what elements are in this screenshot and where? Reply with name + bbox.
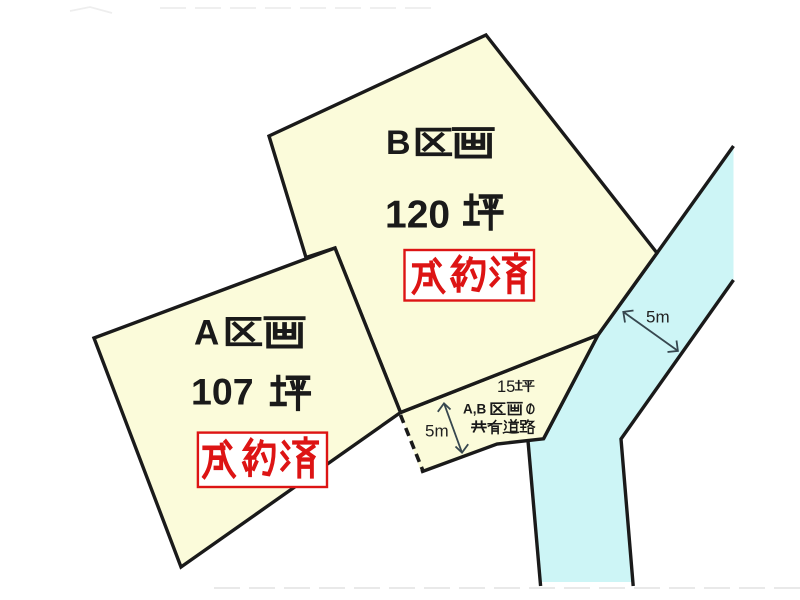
svg-text:15: 15 [497,378,515,396]
svg-text:B: B [386,124,411,162]
svg-text:A,B: A,B [463,401,487,416]
svg-text:5m: 5m [646,308,670,327]
svg-text:A: A [194,314,219,353]
svg-text:120: 120 [385,194,450,237]
svg-text:5m: 5m [425,422,449,441]
svg-text:107: 107 [191,371,254,413]
